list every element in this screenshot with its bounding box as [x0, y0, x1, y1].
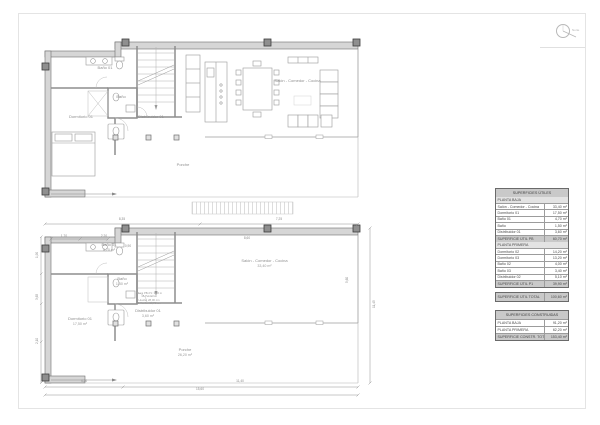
area-row: PLANTA PRIMERA 62,20 m² — [496, 326, 568, 333]
porch-boundary — [85, 323, 358, 383]
built-areas-table: SUPERFICIES CONSTRUIDAS PLANTA BAJA 91,2… — [495, 310, 569, 341]
room-label-distribuidor01: Distribuidor 01 3,60 m² — [126, 309, 170, 318]
area-row: Salón - Comedor - Cocina 33,40 m² — [496, 203, 568, 209]
dim-left-2: 3,65 — [36, 294, 39, 300]
stair-note: Altura PB-P1: 3,00 m 16 Peldaños Huella:… — [126, 292, 172, 305]
area-tables: SUPERFICIES ÚTILES PLANTA BAJA Salón - C… — [495, 188, 569, 341]
floor-plan-dimensioned — [40, 221, 380, 406]
useful-areas-table: SUPERFICIES ÚTILES PLANTA BAJA Salón - C… — [495, 188, 569, 288]
area-row: Baño 1,50 m² — [496, 222, 568, 228]
frame-corner-line — [540, 47, 585, 48]
dim-top-right: 7,25 — [249, 218, 309, 221]
dim-in-1: 1,70 — [54, 235, 74, 238]
area-row: Dormitorio 02 14,20 m² — [496, 248, 568, 254]
room-label-dormitorio01: Dormitorio 01 17,50 m² — [58, 317, 102, 326]
dim-left-3: 2,10 — [36, 338, 39, 344]
dim-bottom-left: 4,20 — [64, 380, 104, 383]
stairs — [138, 233, 174, 296]
total-row-util: SUPERFICIE ÚTIL TOTAL 100,60 m² — [496, 293, 568, 302]
porch-boundary — [85, 137, 358, 197]
stairs — [138, 47, 174, 110]
area-row: Distribuidor 02 5,10 m² — [496, 274, 568, 280]
closet — [88, 91, 108, 116]
dim-bottom-right: 11,40 — [210, 380, 270, 383]
pergola-hatch — [192, 202, 293, 214]
area-row: Baño 01 4,70 m² — [496, 216, 568, 222]
area-row: Dormitorio 03 13,20 m² — [496, 254, 568, 260]
dim-in-3: 0,90 — [118, 245, 138, 248]
room-label-bano01: Baño 01 — [92, 66, 118, 71]
north-icon — [550, 18, 590, 46]
north-label: Norte — [572, 28, 579, 32]
room-label-bano: Baño — [111, 95, 131, 100]
room-label-dormitorio01: Dormitorio 01 — [60, 115, 102, 120]
door-swings — [96, 77, 147, 131]
sofa — [320, 70, 338, 118]
rug — [294, 96, 311, 105]
sideboard — [288, 57, 318, 63]
dim-left-1: 1,90 — [36, 252, 39, 258]
room-label-distribuidor01: Distribuidor 01 — [130, 115, 172, 120]
dim-right-total: 11,45 — [373, 300, 376, 308]
dim-top-left: 8,35 — [92, 218, 152, 221]
table-title: SUPERFICIES ÚTILES — [496, 189, 568, 197]
area-row: Dormitorio 01 17,50 m² — [496, 209, 568, 215]
dim-in-2: 2,20 — [94, 235, 114, 238]
subtotal-row-pb: SUPERFICIE ÚTIL PB 60,70 m² — [496, 235, 568, 242]
bed — [52, 132, 95, 176]
floor-plan-furnished — [40, 35, 370, 220]
reference-arrow — [112, 193, 117, 196]
subtotal-row-p1: SUPERFICIE ÚTIL P1 39,90 m² — [496, 280, 568, 287]
closet — [88, 277, 108, 302]
useful-total-box: SUPERFICIE ÚTIL TOTAL 100,60 m² — [495, 292, 569, 303]
area-row: PLANTA BAJA 91,20 m² — [496, 319, 568, 326]
area-row: Distribuidor 01 3,60 m² — [496, 229, 568, 235]
dim-salon-width: 8,60 — [227, 237, 267, 240]
glass-wall — [205, 235, 358, 325]
table-title: SUPERFICIES CONSTRUIDAS — [496, 311, 568, 319]
seating-modules — [288, 115, 332, 127]
room-label-salon: Salón - Comedor - Cocina — [260, 79, 335, 84]
room-label-bano: Baño 1,50 m² — [111, 277, 133, 286]
room-label-porche: Porche 26,20 m² — [167, 348, 203, 357]
area-row: Baño 03 3,40 m² — [496, 267, 568, 273]
room-label-porche: Porche — [168, 163, 198, 168]
drawing-sheet: Norte — [0, 0, 600, 425]
room-label-salon: Salón - Comedor - Cocina 33,40 m² — [232, 259, 297, 268]
dining-table — [236, 61, 279, 117]
dim-salon-height: 5,60 — [346, 277, 349, 283]
area-row: Baño 02 4,00 m² — [496, 261, 568, 267]
total-row-built: SUPERFICIE CONSTR. TOTAL 153,40 m² — [496, 333, 568, 340]
reference-arrow — [112, 379, 117, 382]
kitchen — [186, 55, 227, 122]
dim-bottom-total: 15,60 — [170, 388, 230, 391]
